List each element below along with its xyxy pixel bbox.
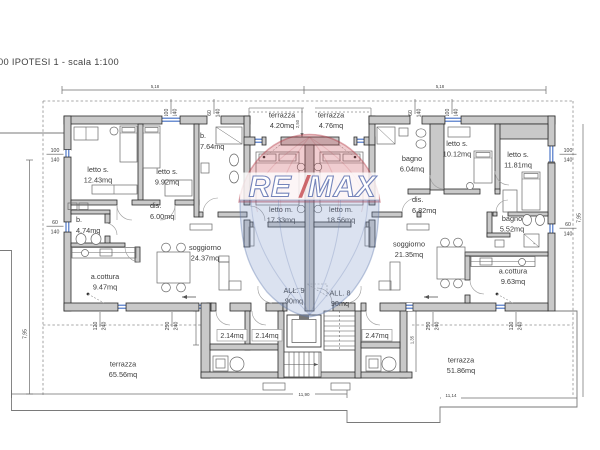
svg-text:60: 60 [565, 222, 571, 228]
svg-text:250: 250 [426, 322, 432, 331]
svg-text:6.00mq: 6.00mq [150, 212, 174, 221]
svg-text:5,18: 5,18 [151, 84, 160, 89]
svg-text:terrazza: terrazza [269, 111, 296, 120]
svg-text:MAX: MAX [308, 171, 378, 204]
svg-text:7,95: 7,95 [23, 329, 29, 339]
svg-text:140: 140 [564, 158, 573, 164]
svg-text:9.63mq: 9.63mq [501, 277, 525, 286]
svg-text:4.74mq: 4.74mq [76, 226, 100, 235]
svg-text:140: 140 [51, 158, 60, 164]
svg-text:60: 60 [408, 110, 414, 116]
svg-text:letto s.: letto s. [156, 167, 178, 176]
svg-text:soggiorno: soggiorno [189, 243, 221, 252]
svg-text:7,95: 7,95 [577, 213, 583, 223]
svg-text:100: 100 [564, 148, 573, 154]
svg-text:250: 250 [165, 322, 171, 331]
svg-text:letto s.: letto s. [507, 150, 529, 159]
svg-text:100: 100 [51, 148, 60, 154]
svg-text:2.47mq: 2.47mq [365, 333, 388, 340]
svg-text:5,18: 5,18 [436, 84, 445, 89]
svg-text:bagno: bagno [502, 214, 522, 223]
svg-text:4.20mq: 4.20mq [270, 121, 294, 130]
svg-text:dis.: dis. [150, 201, 161, 210]
svg-text:120: 120 [93, 322, 99, 331]
svg-text:soggiorno: soggiorno [393, 240, 425, 249]
svg-text:a.cottura: a.cottura [499, 267, 528, 276]
svg-text:4.76mq: 4.76mq [319, 121, 343, 130]
svg-text:2.14mq: 2.14mq [255, 333, 278, 340]
svg-text:24.37mq: 24.37mq [191, 254, 219, 263]
svg-text:7.64mq: 7.64mq [200, 142, 224, 151]
svg-text:terrazza: terrazza [110, 360, 137, 369]
svg-text:b.: b. [200, 131, 206, 140]
svg-text:12.43mq: 12.43mq [84, 176, 112, 185]
svg-text:51.86mq: 51.86mq [447, 366, 475, 375]
svg-text:a.cottura: a.cottura [91, 272, 120, 281]
svg-text:00 IPOTESI 1 - scala 1:100: 00 IPOTESI 1 - scala 1:100 [0, 57, 119, 67]
svg-text:11,14: 11,14 [446, 393, 457, 398]
svg-text:240: 240 [174, 322, 180, 331]
svg-text:9.47mq: 9.47mq [93, 283, 117, 292]
svg-text:60: 60 [207, 110, 213, 116]
svg-text:letto s.: letto s. [87, 165, 109, 174]
svg-text:RE: RE [249, 171, 292, 204]
svg-text:240: 240 [102, 322, 108, 331]
svg-text:140: 140 [51, 230, 60, 236]
svg-text:11.81mq: 11.81mq [504, 161, 532, 170]
svg-text:6.04mq: 6.04mq [400, 165, 424, 174]
svg-text:240: 240 [435, 322, 441, 331]
svg-text:terrazza: terrazza [318, 111, 345, 120]
svg-text:b.: b. [76, 215, 82, 224]
svg-text:bagno: bagno [402, 154, 422, 163]
svg-text:60: 60 [52, 220, 58, 226]
svg-text:dis.: dis. [412, 195, 423, 204]
svg-text:terrazza: terrazza [448, 356, 475, 365]
svg-text:21.35mq: 21.35mq [395, 250, 423, 259]
svg-text:5.52mq: 5.52mq [500, 225, 524, 234]
svg-text:2,50: 2,50 [295, 119, 300, 128]
svg-text:65.56mq: 65.56mq [109, 370, 137, 379]
svg-text:11,90: 11,90 [299, 392, 310, 397]
svg-text:10.12mq: 10.12mq [443, 150, 471, 159]
svg-text:9.92mq: 9.92mq [155, 178, 179, 187]
svg-text:2.14mq: 2.14mq [220, 333, 243, 340]
svg-text:240: 240 [518, 322, 524, 331]
svg-text:1,35: 1,35 [410, 335, 415, 344]
svg-text:6.82mq: 6.82mq [412, 206, 436, 215]
svg-text:140: 140 [564, 232, 573, 238]
svg-text:120: 120 [509, 322, 515, 331]
svg-text:letto s.: letto s. [446, 139, 468, 148]
